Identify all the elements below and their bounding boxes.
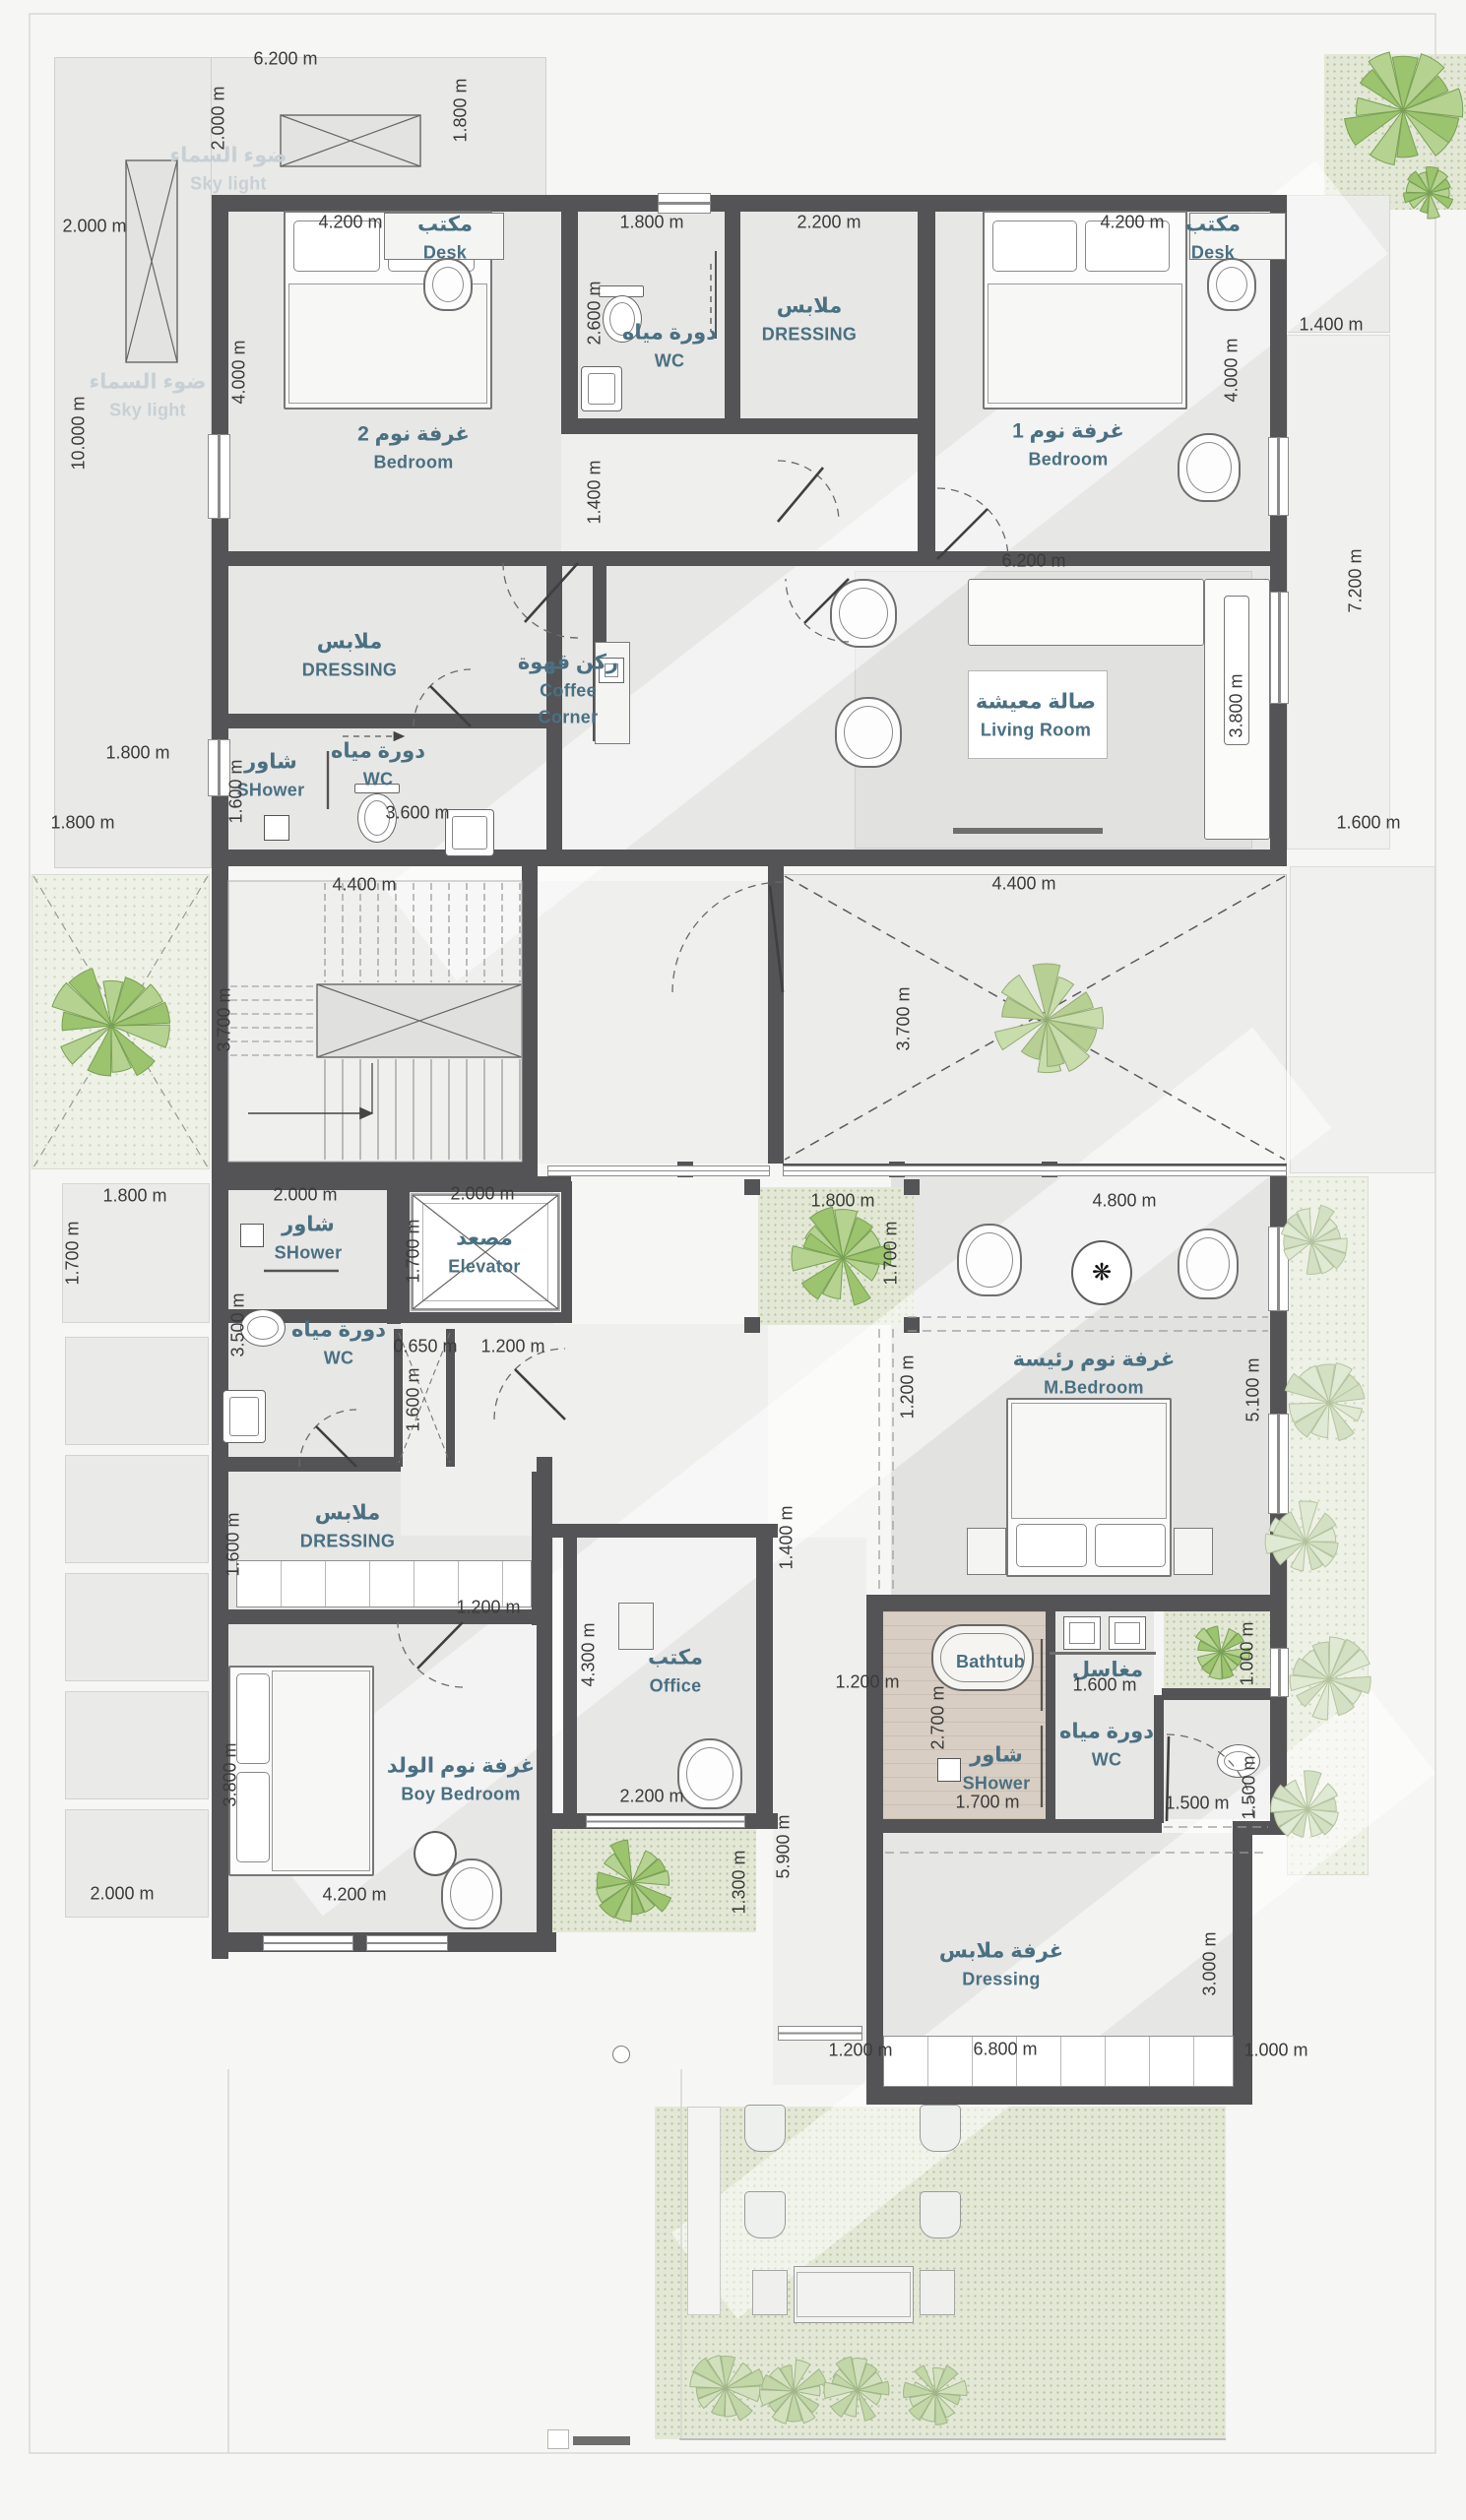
left-panel-2 <box>65 1573 209 1681</box>
dimension-label: 2.000 m <box>273 1185 337 1206</box>
dimension-label: 1.600 m <box>223 1512 244 1576</box>
room-label-ar: دورة مياه <box>622 319 717 348</box>
dimension-label: 1.700 m <box>63 1221 84 1285</box>
room-label-ar: غرفة نوم الولد <box>387 1752 535 1782</box>
room-label-en: Desk <box>1185 240 1241 266</box>
dimension-label: 1.800 m <box>50 813 114 834</box>
dimension-label: 1.800 m <box>619 213 683 233</box>
dimension-label: 5.100 m <box>1243 1357 1264 1421</box>
post-2 <box>744 1317 760 1333</box>
room-label-dressing-top: ملابسDRESSING <box>762 292 857 348</box>
wall-45 <box>1154 1695 1164 1823</box>
room-label-en: SHower <box>237 778 305 803</box>
room-label-bedroom2: غرفة نوم 2Bedroom <box>357 420 470 476</box>
window-3 <box>1268 437 1289 516</box>
room-label-desk-bedroom1: مكتبDesk <box>1185 211 1241 267</box>
post-0 <box>744 1179 760 1195</box>
room-label-ar: شاور <box>275 1211 343 1240</box>
nightstand-2 <box>1174 1528 1213 1575</box>
wall-25 <box>212 1457 401 1472</box>
room-label-en: SHower <box>275 1240 343 1266</box>
room-label-ar: غرفة نوم رئيسة <box>1013 1346 1176 1375</box>
dimension-label: 3.000 m <box>1200 1931 1221 1995</box>
room-label-en: Bathtub <box>956 1649 1025 1674</box>
dimension-label: 4.200 m <box>318 213 382 233</box>
dimension-label: 2.200 m <box>797 213 860 233</box>
wall-34 <box>756 1538 773 1829</box>
room-label-bedroom1: غرفة نوم 1Bedroom <box>1012 417 1124 473</box>
f-pillow-37 <box>236 1772 270 1862</box>
window-11 <box>1268 1414 1289 1514</box>
dimension-label: 7.200 m <box>1346 548 1367 612</box>
wall-32 <box>551 1524 778 1538</box>
mbed-chair-2 <box>1178 1228 1239 1299</box>
room-label-en: Elevator <box>448 1254 520 1280</box>
f-pillow-49 <box>1095 1524 1166 1567</box>
dimension-label: 6.800 m <box>973 2040 1037 2060</box>
window-13 <box>778 2026 862 2041</box>
room-label-ar: مكتب <box>417 211 473 240</box>
dimension-label: 1.600 m <box>1072 1675 1136 1696</box>
f-sheet-47 <box>1011 1403 1167 1519</box>
room-label-dressing-master: غرفة ملابسDressing <box>939 1937 1063 1993</box>
garden-chair-3 <box>744 2191 786 2238</box>
chair-boy <box>441 1858 502 1929</box>
wall-23 <box>561 1181 572 1323</box>
room-label-ar: غرفة ملابس <box>939 1937 1063 1967</box>
garden-path <box>687 2107 721 2315</box>
room-label-ar: صالة معيشة <box>976 688 1096 718</box>
dimension-label: 3.800 m <box>221 1742 241 1806</box>
room-label-en: Sky light <box>89 398 206 423</box>
f-pillow-48 <box>1016 1524 1087 1567</box>
post-3 <box>904 1317 920 1333</box>
dimension-label: 1.700 m <box>955 1793 1019 1813</box>
room-label-skylight-left: ضوء السماءSky light <box>89 368 206 424</box>
room-label-wc-master: دورة مياهWC <box>1059 1718 1154 1774</box>
dimension-label: 0.650 m <box>393 1337 457 1357</box>
dimension-label: 4.800 m <box>1092 1191 1156 1212</box>
room-label-en: Bedroom <box>357 450 470 475</box>
room-label-en: WC <box>622 348 717 374</box>
garden-chair-1 <box>744 2105 786 2152</box>
dimension-label: 2.000 m <box>90 1884 154 1905</box>
window-7 <box>263 1935 353 1951</box>
room-label-ar: شاور <box>237 748 305 778</box>
window-4 <box>1270 592 1289 704</box>
terrace-right-2 <box>1287 335 1390 850</box>
dimension-label: 4.000 m <box>229 340 250 404</box>
room-label-ar: غرفة نوم 1 <box>1012 417 1124 447</box>
room-label-en: M.Bedroom <box>1013 1375 1176 1401</box>
room-label-shower-low: شاورSHower <box>275 1211 343 1267</box>
wall-33 <box>563 1538 577 1823</box>
wall-31 <box>537 1457 552 1949</box>
dimension-label: 2.600 m <box>585 281 606 345</box>
dimension-label: 1.000 m <box>1243 2041 1307 2061</box>
dimension-label: 2.200 m <box>619 1787 683 1807</box>
room-label-ar: دورة مياه <box>331 737 425 767</box>
f-pillow-5 <box>992 220 1077 272</box>
dimension-label: 2.000 m <box>209 86 229 150</box>
dimension-label: 1.800 m <box>451 78 472 142</box>
left-panel-0 <box>65 1337 209 1445</box>
dimension-label: 2.700 m <box>928 1685 949 1749</box>
dimension-label: 3.700 m <box>215 987 235 1051</box>
room-label-ar: ضوء السماء <box>89 368 206 398</box>
garden-top-right <box>1324 54 1466 210</box>
room-label-en: DRESSING <box>302 658 397 683</box>
site-bench <box>573 2436 630 2445</box>
wall-2 <box>1270 195 1287 866</box>
room-label-ar: دورة مياه <box>1059 1718 1154 1747</box>
room-label-elevator: مصعدElevator <box>448 1225 520 1281</box>
window-12 <box>1270 1648 1289 1697</box>
left-panel-1 <box>65 1455 209 1563</box>
room-label-living-room: صالة معيشةLiving Room <box>976 688 1096 744</box>
room-label-en: Boy Bedroom <box>387 1782 535 1807</box>
room-label-en: DRESSING <box>300 1529 395 1554</box>
dimension-label: 1.200 m <box>480 1337 544 1357</box>
sofa-top <box>968 579 1204 646</box>
wall-39 <box>883 1819 1162 1833</box>
wall-21 <box>399 1312 572 1323</box>
room-label-master-bedroom: غرفة نوم رئيسةM.Bedroom <box>1013 1346 1176 1402</box>
room-label-shower-master: شاورSHower <box>963 1741 1031 1797</box>
dimension-label: 1.200 m <box>828 2041 892 2061</box>
dimension-label: 2.000 m <box>450 1184 514 1205</box>
room-label-ar: ركن قهوة <box>518 649 618 678</box>
room-label-ar: مصعد <box>448 1225 520 1254</box>
garden-side-2 <box>920 2270 955 2315</box>
shower-head-mid <box>264 815 289 841</box>
garden-left <box>32 874 210 1169</box>
room-label-bathtub: Bathtub <box>956 1649 1025 1674</box>
wall-4 <box>561 195 578 434</box>
wall-3 <box>212 850 1287 866</box>
lower-corridor <box>773 1538 866 2085</box>
garden-table <box>794 2266 914 2323</box>
room-label-desk-bedroom2: مكتبDesk <box>417 211 473 267</box>
room-label-wc-mid: دورة مياهWC <box>331 737 425 793</box>
room-label-ar: دورة مياه <box>291 1316 386 1346</box>
dimension-label: 1.600 m <box>404 1367 424 1431</box>
chair-bedroom1 <box>1178 433 1241 502</box>
shower-head-low <box>240 1224 264 1247</box>
room-label-ar: ملابس <box>300 1499 395 1529</box>
shower-head-master <box>937 1758 961 1782</box>
dimension-label: 1.000 m <box>1238 1621 1258 1685</box>
wall-7 <box>561 418 935 434</box>
nightstand-1 <box>967 1528 1006 1575</box>
dimension-label: 5.900 m <box>774 1814 795 1878</box>
grid-marker <box>612 2046 630 2063</box>
room-label-dressing-mid: ملابسDRESSING <box>302 628 397 684</box>
dimension-label: 6.200 m <box>1001 551 1065 572</box>
room-label-wc-low: دورة مياهWC <box>291 1316 386 1372</box>
dimension-label: 1.400 m <box>1299 315 1363 336</box>
dimension-label: 4.200 m <box>1100 213 1164 233</box>
room-label-ar: شاور <box>963 1741 1031 1771</box>
f-sheet-38 <box>272 1670 370 1871</box>
dimension-label: 3.700 m <box>894 986 915 1050</box>
dimension-label: 1.200 m <box>456 1598 520 1618</box>
wall-43 <box>1233 1821 1287 1835</box>
post-1 <box>904 1179 920 1195</box>
living-chair-1 <box>830 579 897 648</box>
dimension-label: 3.600 m <box>385 803 449 824</box>
wall-37 <box>866 1595 1287 1611</box>
wall-5 <box>725 195 740 434</box>
window-8 <box>366 1935 448 1951</box>
room-label-en: WC <box>291 1346 386 1371</box>
dimension-label: 2.000 m <box>62 217 126 237</box>
dimension-label: 1.500 m <box>1165 1794 1229 1814</box>
room-label-en: Living Room <box>976 718 1096 743</box>
wall-6 <box>918 195 935 566</box>
window-1 <box>208 434 230 519</box>
dimension-label: 1.800 m <box>102 1186 166 1207</box>
room-label-ar: مكتب <box>648 1644 703 1673</box>
floor-plan-canvas: ❋ضوء السماءSky lightضوء السماءSky lightم… <box>0 0 1466 2520</box>
room-label-wc-top: دورة مياهWC <box>622 319 717 375</box>
dimension-label: 4.300 m <box>579 1622 600 1686</box>
tv-bench <box>953 828 1103 834</box>
room-label-ar: غرفة نوم 2 <box>357 420 470 450</box>
wall-40 <box>866 2087 1252 2105</box>
dimension-label: 1.700 m <box>404 1219 424 1283</box>
dimension-label: 10.000 m <box>69 396 90 470</box>
wall-46 <box>1162 1688 1272 1700</box>
room-label-en: Bedroom <box>1012 447 1124 472</box>
wall-42 <box>1270 1611 1287 1831</box>
wall-15 <box>212 1162 537 1176</box>
room-label-coffee-corner: ركن قهوةCoffee Corner <box>518 649 618 730</box>
dimension-label: 3.800 m <box>1227 673 1247 737</box>
wall-0 <box>212 195 1287 212</box>
dimension-label: 1.200 m <box>835 1672 899 1693</box>
window-0 <box>658 193 711 214</box>
basin-2 <box>1109 1616 1146 1650</box>
dimension-label: 1.800 m <box>105 743 169 764</box>
room-label-dressing-low: ملابسDRESSING <box>300 1499 395 1555</box>
basin-1 <box>1063 1616 1101 1650</box>
window-9 <box>586 1815 745 1828</box>
room-label-en: Sky light <box>169 171 287 197</box>
room-label-en: Office <box>648 1673 703 1699</box>
wall-14 <box>768 866 784 1164</box>
sink-top-wc <box>581 366 622 411</box>
mid-corridor <box>538 881 768 1164</box>
wall-8 <box>212 551 1287 566</box>
window-10 <box>1268 1227 1289 1311</box>
sink-low-wc <box>223 1390 266 1443</box>
room-label-en: Desk <box>417 240 473 266</box>
dimension-label: 1.600 m <box>226 759 247 823</box>
sink-mid-wc <box>445 809 494 856</box>
garden-chair-4 <box>920 2191 961 2238</box>
office-chair <box>677 1738 742 1809</box>
room-label-ar: ملابس <box>762 292 857 322</box>
basin-counter <box>1050 1652 1156 1655</box>
dimension-label: 3.500 m <box>228 1292 249 1356</box>
f-sheet-7 <box>988 283 1182 404</box>
table-plant-icon: ❋ <box>1092 1259 1112 1288</box>
left-panel-3 <box>65 1691 209 1799</box>
dimension-label: 1.500 m <box>1240 1755 1260 1819</box>
dimension-label: 1.700 m <box>881 1221 902 1285</box>
room-label-ar: ملابس <box>302 628 397 658</box>
garden-side-1 <box>752 2270 788 2315</box>
dimension-label: 1.800 m <box>810 1191 874 1212</box>
wall-41 <box>1233 1821 1252 2105</box>
room-label-office: مكتبOffice <box>648 1644 703 1700</box>
dimension-label: 4.000 m <box>1222 338 1243 402</box>
wall-44 <box>1046 1611 1055 1821</box>
room-label-shower-mid: شاورSHower <box>237 748 305 804</box>
dimension-label: 4.400 m <box>332 875 396 896</box>
dimension-label: 4.200 m <box>322 1885 386 1906</box>
dimension-label: 1.400 m <box>585 460 606 524</box>
room-label-en: WC <box>331 767 425 792</box>
dimension-label: 1.200 m <box>898 1354 919 1418</box>
room-label-ar: مكتب <box>1185 211 1241 240</box>
window-6 <box>783 1165 1287 1176</box>
closet-dressing-master <box>883 2036 1234 2087</box>
office-green-strip <box>551 1829 756 1932</box>
garden-chair-2 <box>920 2105 961 2152</box>
room-label-boy-bedroom: غرفة نوم الولدBoy Bedroom <box>387 1752 535 1808</box>
wall-13 <box>522 866 538 1176</box>
room-label-en: Coffee Corner <box>521 678 615 729</box>
mbed-chair-1 <box>957 1224 1022 1296</box>
dimension-label: 4.400 m <box>991 874 1055 895</box>
room-label-en: Dressing <box>939 1967 1063 1992</box>
room-label-en: DRESSING <box>762 322 857 347</box>
dimension-label: 1.600 m <box>1336 813 1400 834</box>
living-chair-2 <box>835 697 902 768</box>
dimension-label: 1.400 m <box>777 1505 797 1569</box>
window-5 <box>547 1165 770 1176</box>
dimension-label: 6.200 m <box>253 49 317 70</box>
site-bracket <box>547 2429 569 2449</box>
wall-10 <box>212 714 562 728</box>
dimension-label: 1.300 m <box>730 1850 750 1914</box>
room-label-en: WC <box>1059 1747 1154 1773</box>
f-pillow-36 <box>236 1673 270 1764</box>
